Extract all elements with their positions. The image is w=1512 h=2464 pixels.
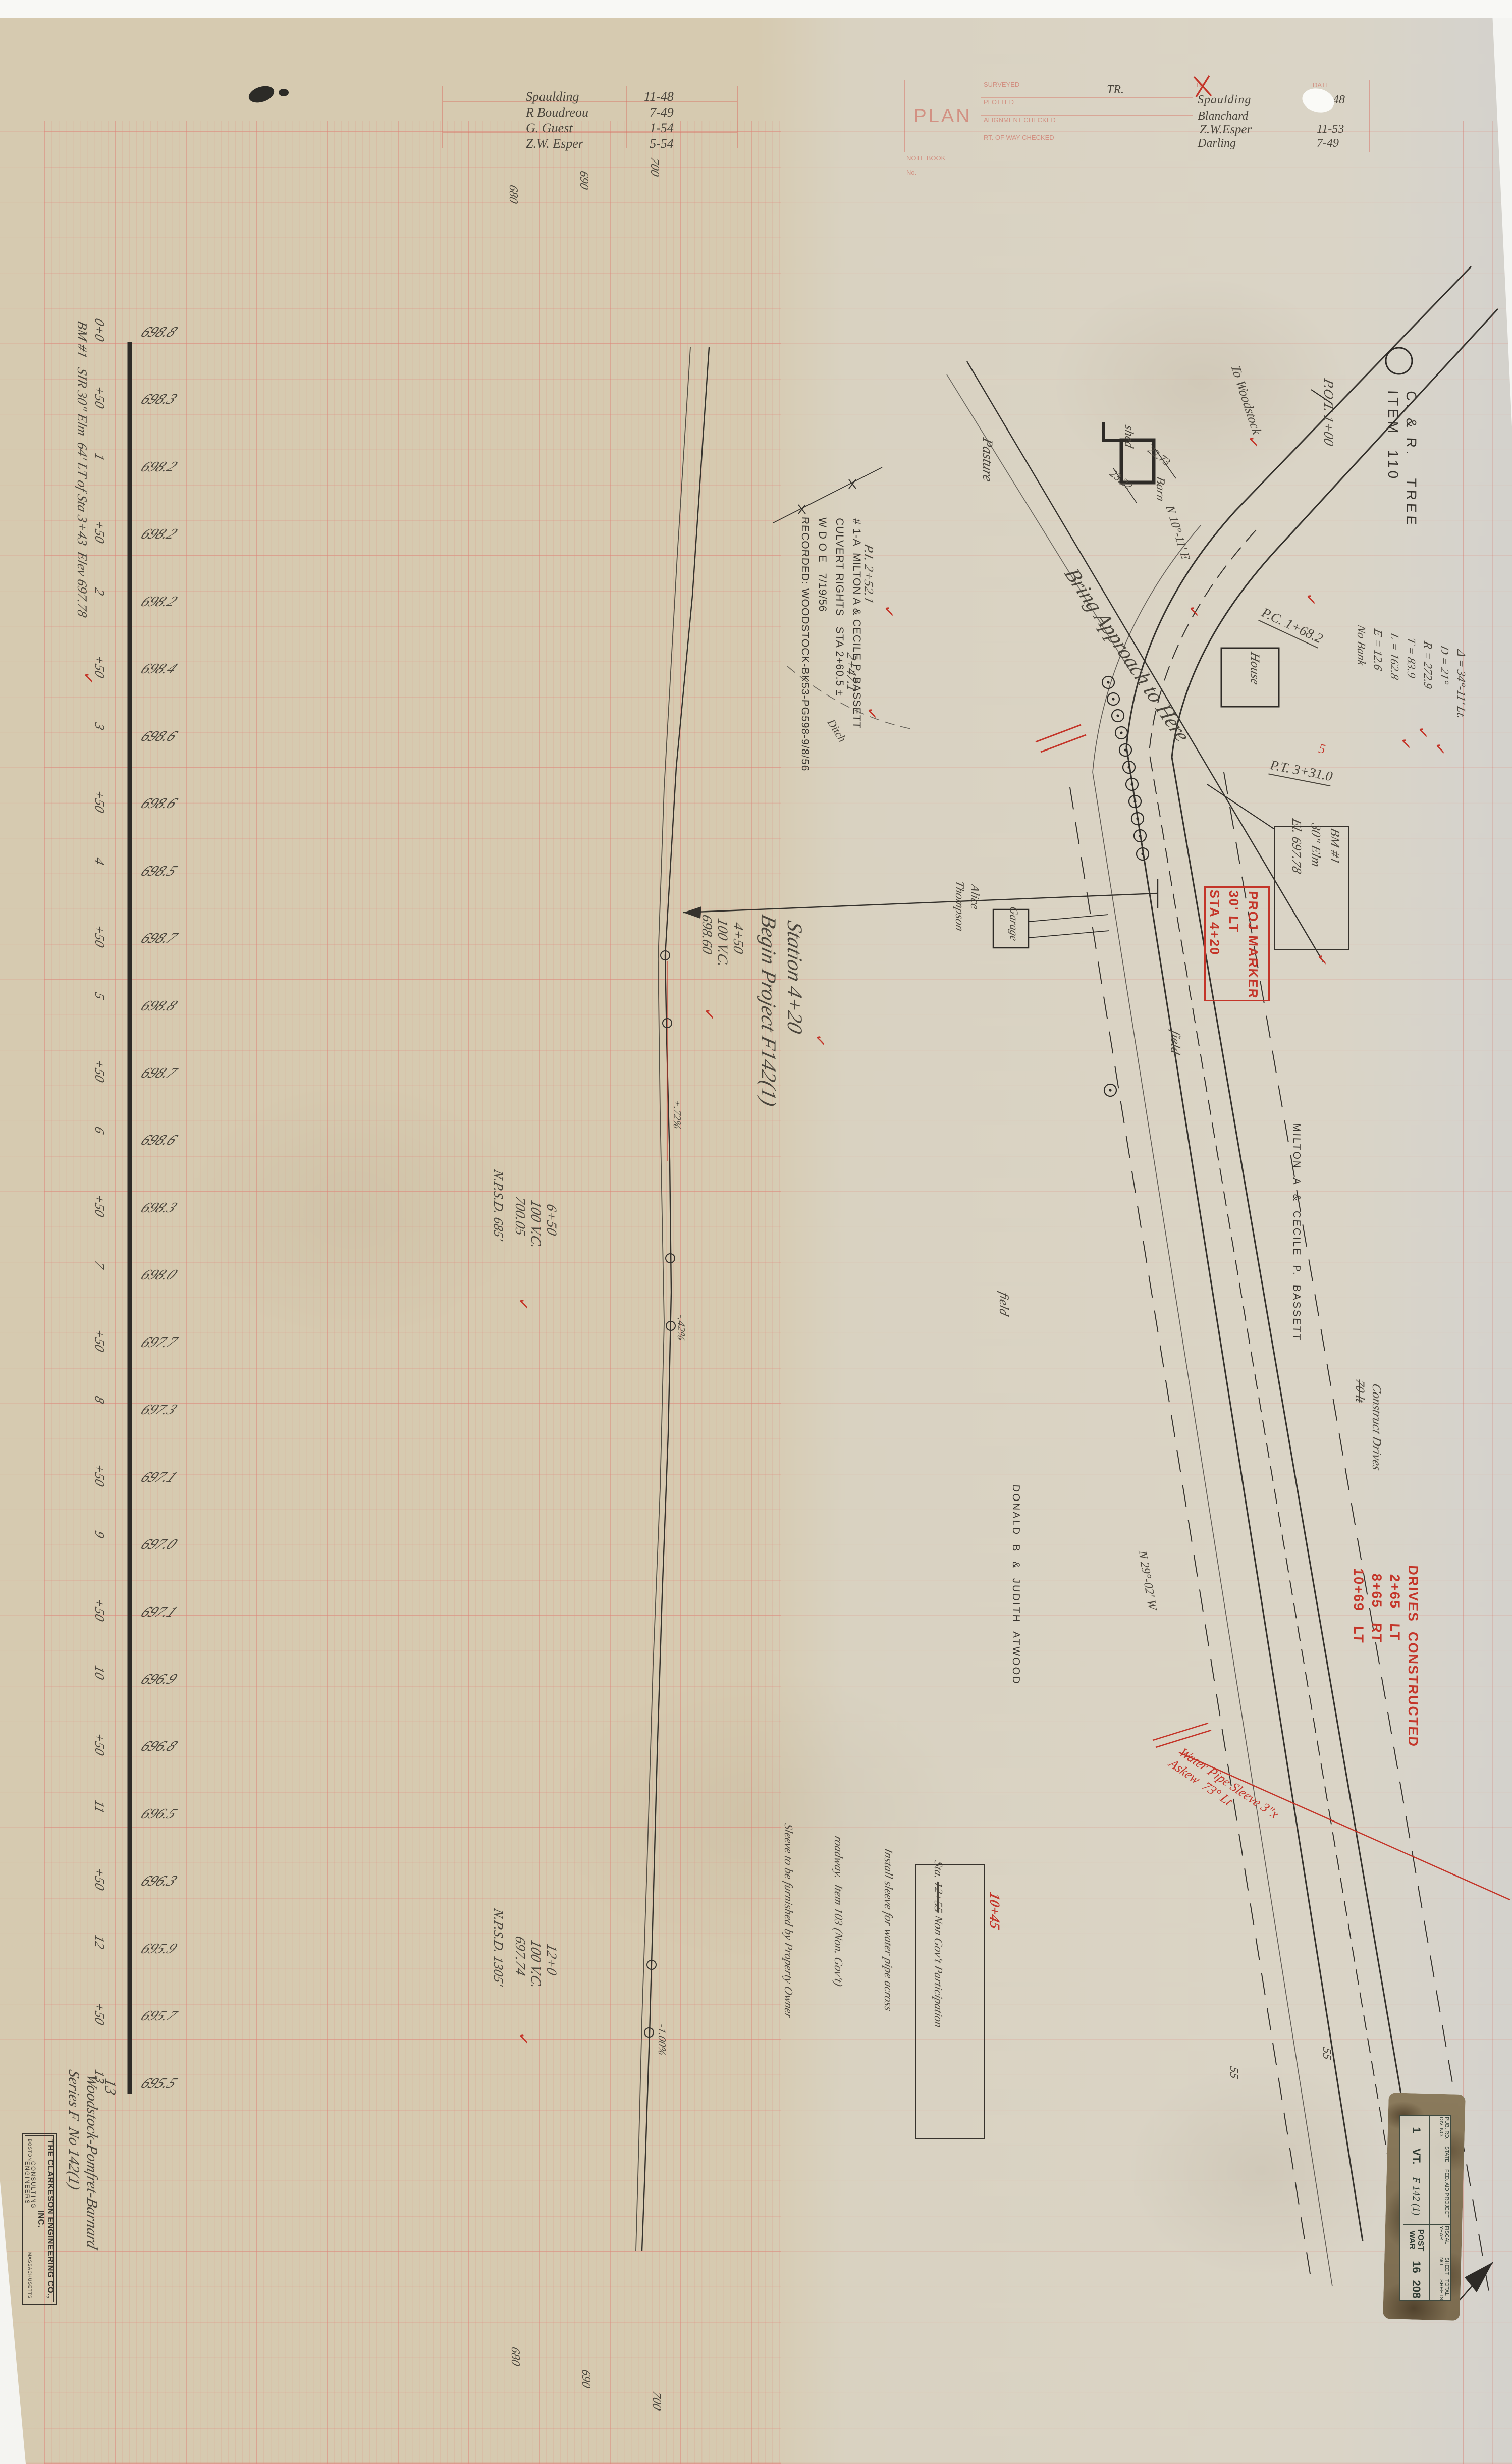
house-label: House xyxy=(1248,651,1262,686)
title-block-inner: THE CLARKESON ENGINEERING CO., INC. BOST… xyxy=(25,2135,54,2302)
form-row-date: 7-49 xyxy=(1317,137,1339,150)
series-number: Series F No 142(1) xyxy=(65,2068,83,2246)
form-no-label: No. xyxy=(906,169,916,176)
sheet-id-note: 13Woodstock-Pomfret-BarnardSeries F No 1… xyxy=(65,2068,119,2256)
stamp-header-cell: SHEET NO. xyxy=(1429,2256,1450,2278)
scale-label-690-top: 690 xyxy=(577,169,590,191)
npsd-note-2: N.P.S.D. 1305' xyxy=(491,1907,506,1988)
construct-drives-strike: 70 lt xyxy=(1352,1378,1368,1469)
legend-line2: ITEM 110 xyxy=(1385,390,1401,482)
form-row-label: ALIGNMENT CHECKED xyxy=(981,116,1056,124)
stamp-value-cell: POST WAR xyxy=(1403,2225,1429,2256)
owner-atwood: DONALD B & JUDITH ATWOOD xyxy=(1010,1484,1021,1685)
right-edge-line xyxy=(1492,121,1493,2464)
stamp-header-cell: TOTAL SHEETS xyxy=(1429,2278,1450,2300)
construct-drives-pencil: Construct Drives70 lt xyxy=(1352,1378,1385,1473)
sleeve-line2: Install sleeve for water pipe across xyxy=(880,1847,897,2045)
stamp-value-cell: F 142 (1) xyxy=(1403,2168,1429,2225)
form-by-header: BY xyxy=(1197,81,1205,89)
company-name: THE CLARKESON ENGINEERING CO., INC. xyxy=(36,2136,55,2302)
stamp-value-row: 1VT.F 142 (1)POST WAR16208 xyxy=(1403,2116,1429,2300)
field-label-1: field xyxy=(1168,1029,1183,1056)
legend-text: C. & R. TREEITEM 110 xyxy=(1384,390,1420,528)
profile-grid-paper xyxy=(44,121,781,2464)
form-plotted-by: Blanchard xyxy=(1198,110,1248,123)
form-surveyed-by: Spaulding xyxy=(1198,93,1251,107)
sleeve-sta-old: 12+55 xyxy=(932,1880,945,1914)
sleeve-sta-new-red: 10+45 xyxy=(986,1891,1002,1931)
form-notebook-label: NOTE BOOK xyxy=(906,154,945,162)
grade-label-2: -.42% xyxy=(675,1313,687,1342)
form-align-date: 11-53 xyxy=(1317,123,1344,136)
profile-crew-form xyxy=(442,86,738,148)
sleeve-line1-rest: Non Gov't Participation xyxy=(932,1911,945,2029)
construct-drives-line1: Construct Drives xyxy=(1368,1382,1385,1473)
shed-label: shed xyxy=(1122,423,1136,449)
drawing-sheet: SpauldingR BoudreouG. GuestZ.W. Esper 11… xyxy=(0,0,1512,2464)
owner-bassett: MILTON A & CECILE P. BASSETT xyxy=(1290,1123,1302,1342)
stamp-header-cell: PUB. RD. DIV. NO. xyxy=(1429,2116,1450,2145)
benchmark-note: BM #1 SIR 30" Elm 64' LT of Sta 3+43 Ele… xyxy=(74,319,90,619)
sleeve-sta-prefix: Sta. xyxy=(932,1859,945,1883)
stamp-header-cell: STATE xyxy=(1429,2145,1450,2168)
stamp-value-cell: 16 xyxy=(1403,2256,1429,2278)
pot-label: P.O.T. 1+00 xyxy=(1321,377,1336,447)
barn-label: Barn xyxy=(1153,475,1167,503)
scan-white-edge-top xyxy=(0,0,1512,18)
form-date-header: DATE xyxy=(1313,81,1330,89)
stamp-value-cell: 208 xyxy=(1403,2278,1429,2300)
stamp-header-cell: FED. AID PROJECT xyxy=(1429,2168,1450,2225)
stamp-value-cell: VT. xyxy=(1403,2145,1429,2168)
scale-label-700-bottom: 700 xyxy=(650,2390,663,2412)
form-entry-tr: TR. xyxy=(1107,83,1124,97)
stamp-header-row: PUB. RD. DIV. NO.STATEFED. AID PROJECTFI… xyxy=(1429,2116,1450,2300)
city-left: BOSTON xyxy=(27,2139,32,2161)
form-row-label: RT. OF WAY CHECKED xyxy=(981,134,1054,141)
title-block: THE CLARKESON ENGINEERING CO., INC. BOST… xyxy=(22,2133,57,2305)
owner-thompson: Alice Thompson xyxy=(952,879,982,937)
sleeve-line3: roadway. Item 103 (Non. Gov't) xyxy=(830,1834,847,2032)
plan-form: PLAN SURVEYED PLOTTED ALIGNMENT CHECKED … xyxy=(904,80,1370,152)
stamp-header-cell: FISCAL YEAR xyxy=(1429,2225,1450,2256)
form-align-by: Z.W.Esper xyxy=(1200,123,1252,137)
federal-aid-stamp: PUB. RD. DIV. NO.STATEFED. AID PROJECTFI… xyxy=(1399,2115,1451,2301)
pasture-label: Pasture xyxy=(979,436,995,484)
binder-mark-small xyxy=(279,89,289,96)
garage-label: Garage xyxy=(1007,905,1020,943)
begin-project-note: Station 4+20 Begin Project F142(1) xyxy=(755,912,807,1116)
scale-label-680-bottom: 680 xyxy=(508,2345,522,2367)
grade-label-1: +.72% xyxy=(671,1098,683,1131)
form-row-by: Darling xyxy=(1198,137,1236,150)
plan-form-title: PLAN xyxy=(913,105,971,127)
proj-marker-text: PROJ MARKER 30' LT STA 4+20 xyxy=(1205,889,1263,999)
project-name: Woodstock-Pomfret-Barnard xyxy=(83,2072,101,2251)
grade-label-3: -1.00% xyxy=(656,2023,668,2057)
legend-line1: C. & R. TREE xyxy=(1403,391,1419,528)
field-label-2: field xyxy=(996,1291,1011,1318)
form-row-label: SURVEYED xyxy=(981,81,1019,88)
scale-label-680-top: 680 xyxy=(506,183,520,205)
scale-label-700-top: 700 xyxy=(647,156,661,178)
scale-label-690-bottom: 690 xyxy=(579,2368,592,2389)
sleeve-line4: Sleeve to be furnished by Property Owner xyxy=(780,1822,797,2020)
stamp-value-cell: 1 xyxy=(1403,2116,1429,2145)
npsd-note-1: N.P.S.D. 685' xyxy=(491,1168,506,1242)
form-row-label: PLOTTED xyxy=(981,98,1014,106)
binder-mark xyxy=(247,83,277,106)
city-right: MASSACHUSETTS xyxy=(27,2252,32,2299)
company-sub: CONSULTING ENGINEERS xyxy=(24,2161,36,2252)
sheet-number: 13 xyxy=(101,2077,119,2256)
drives-constructed-stamp: DRIVES CONSTRUCTED 2+65 LT 8+65 RT 10+69… xyxy=(1349,1563,1422,1748)
sleeve-line1: Sta. 12+55 Non Gov't Participation xyxy=(930,1859,947,2057)
culvert-rights-note: # 1-A MILTON A & CECILE P. BASSETT CULVE… xyxy=(796,516,865,773)
